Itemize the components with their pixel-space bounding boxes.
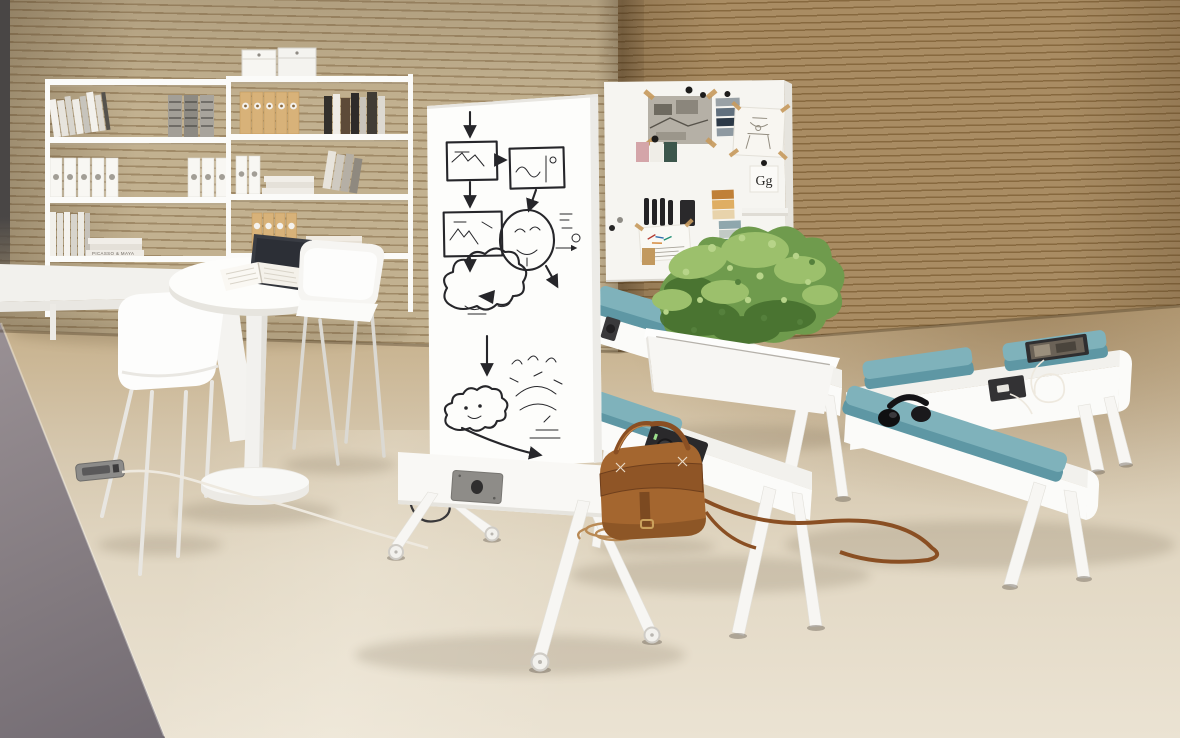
book-spine-title: PICASSO & MAYA [92, 251, 134, 256]
floor-outlet [75, 460, 125, 482]
binder-row [240, 92, 299, 134]
storage-boxes [242, 48, 316, 77]
tray-shelf [742, 208, 788, 216]
binder-row [50, 158, 228, 197]
svg-text:Gg: Gg [755, 174, 772, 189]
chair-sketch [729, 101, 791, 161]
book-row [48, 90, 214, 138]
magnet-dot [617, 217, 623, 223]
whiteboard-panel [427, 94, 602, 472]
kraft-card [642, 248, 655, 265]
office-scene: PICASSO & MAYA [0, 0, 1180, 738]
magnet-dot [700, 92, 706, 98]
book-row [324, 92, 385, 134]
side-chair-right [294, 240, 384, 464]
magnet-dot [609, 225, 615, 231]
molded-chair-left [102, 290, 224, 574]
magnet-dot [686, 87, 693, 94]
stand-outlet [451, 470, 503, 503]
book-row: PICASSO & MAYA [50, 212, 144, 256]
book-row [236, 151, 363, 194]
